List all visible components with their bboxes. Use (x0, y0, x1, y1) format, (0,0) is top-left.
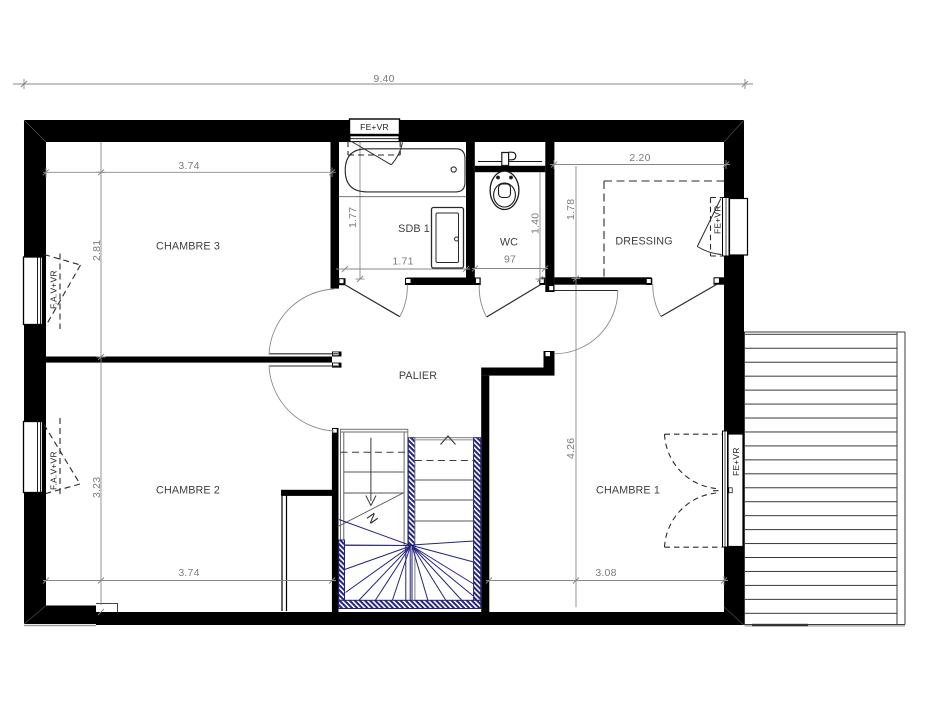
svg-text:WC: WC (500, 237, 518, 249)
svg-text:F.A.V+VR: F.A.V+VR (49, 270, 59, 309)
svg-text:FE+VR: FE+VR (713, 205, 723, 234)
svg-text:1.71: 1.71 (392, 256, 413, 268)
svg-text:PALIER: PALIER (399, 370, 437, 382)
svg-text:1.77: 1.77 (347, 207, 359, 228)
svg-text:2.20: 2.20 (629, 152, 650, 164)
svg-text:9.40: 9.40 (373, 73, 394, 85)
svg-text:4.26: 4.26 (565, 438, 577, 459)
svg-text:3.74: 3.74 (178, 160, 199, 172)
svg-text:CHAMBRE 1: CHAMBRE 1 (596, 484, 660, 496)
svg-text:SDB 1: SDB 1 (398, 223, 430, 235)
svg-text:CHAMBRE 3: CHAMBRE 3 (156, 241, 220, 253)
svg-text:1.78: 1.78 (565, 199, 577, 220)
svg-text:F.A.V+VR: F.A.V+VR (49, 451, 59, 490)
svg-text:FE+VR: FE+VR (360, 122, 389, 132)
svg-text:FE+VR: FE+VR (731, 447, 741, 476)
svg-text:3.74: 3.74 (178, 567, 199, 579)
svg-text:CHAMBRE 2: CHAMBRE 2 (156, 484, 220, 496)
svg-text:3.23: 3.23 (91, 477, 103, 498)
svg-text:2.81: 2.81 (91, 240, 103, 261)
svg-text:1.40: 1.40 (530, 213, 542, 234)
svg-text:97: 97 (504, 254, 516, 266)
svg-text:DRESSING: DRESSING (615, 236, 672, 248)
svg-text:3.08: 3.08 (595, 567, 616, 579)
